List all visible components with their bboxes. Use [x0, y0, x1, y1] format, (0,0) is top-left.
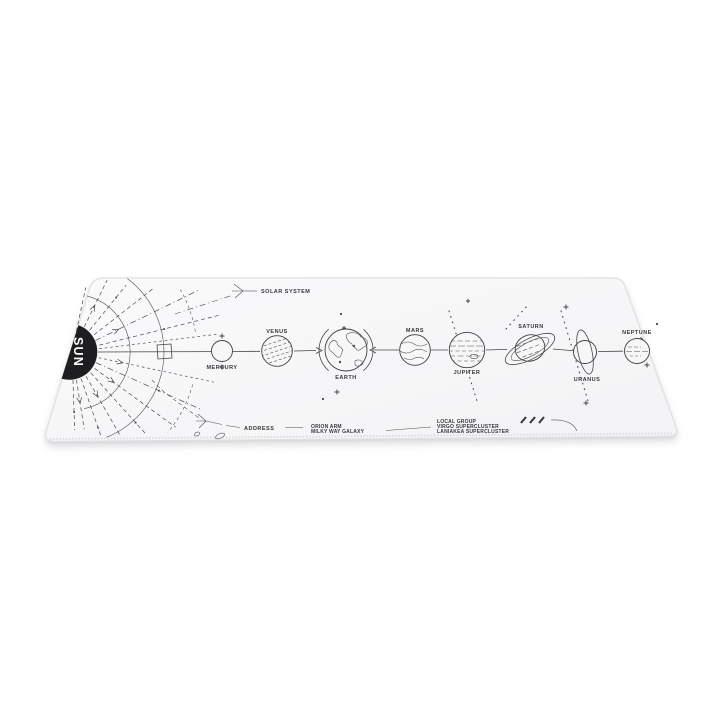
solar-system-label: SOLAR SYSTEM [261, 289, 310, 295]
desk-mat-scene: SOLAR SYSTEM ADDRESS ORION ARM MILKY WAY… [0, 0, 720, 720]
planet-jupiter: JUPITER [449, 332, 485, 376]
saturn-label: SATURN [518, 324, 544, 330]
neptune-label: NEPTUNE [622, 330, 652, 336]
product-photo: SOLAR SYSTEM ADDRESS ORION ARM MILKY WAY… [0, 0, 720, 720]
jupiter-label: JUPITER [454, 370, 481, 376]
address-group-line-3: LANIAKEA SUPERCLUSTER [437, 429, 509, 435]
address-arm-line-2: MILKY WAY GALAXY [311, 429, 365, 435]
mars-label: MARS [406, 328, 424, 334]
earth-label: EARTH [335, 375, 356, 381]
planet-neptune: NEPTUNE [622, 330, 652, 364]
venus-label: VENUS [266, 329, 287, 335]
sun-label: SUN [71, 337, 85, 367]
address-title: ADDRESS [244, 426, 274, 432]
uranus-label: URANUS [574, 377, 601, 383]
mercury-label: MERCURY [206, 365, 237, 371]
